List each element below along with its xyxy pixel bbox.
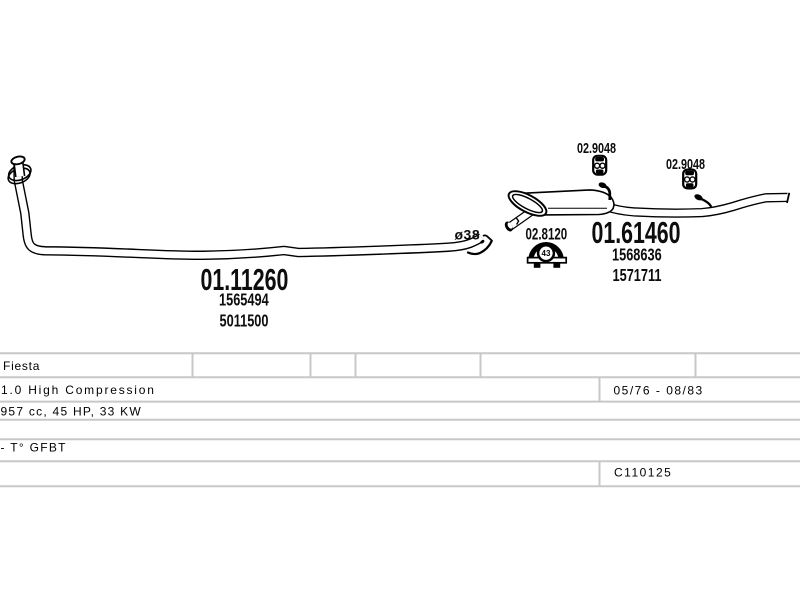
svg-text:C110125: C110125: [614, 466, 672, 480]
svg-text:1571711: 1571711: [613, 266, 662, 286]
svg-text:05/76 - 08/83: 05/76 - 08/83: [614, 383, 704, 397]
svg-text:43: 43: [542, 249, 551, 258]
svg-text:1565494: 1565494: [219, 291, 269, 311]
svg-text:02.9048: 02.9048: [666, 155, 705, 172]
svg-text:Fiesta: Fiesta: [3, 359, 40, 373]
svg-text:5011500: 5011500: [220, 312, 269, 332]
svg-text:02.9048: 02.9048: [577, 139, 616, 156]
svg-text:- T° GFBT: - T° GFBT: [1, 441, 67, 455]
svg-text:1568636: 1568636: [612, 246, 662, 266]
svg-text:1.0 High Compression: 1.0 High Compression: [1, 383, 156, 397]
svg-text:02.8120: 02.8120: [526, 226, 568, 245]
svg-text:ø38: ø38: [455, 226, 481, 242]
svg-text:957 cc, 45 HP, 33 KW: 957 cc, 45 HP, 33 KW: [1, 405, 143, 419]
